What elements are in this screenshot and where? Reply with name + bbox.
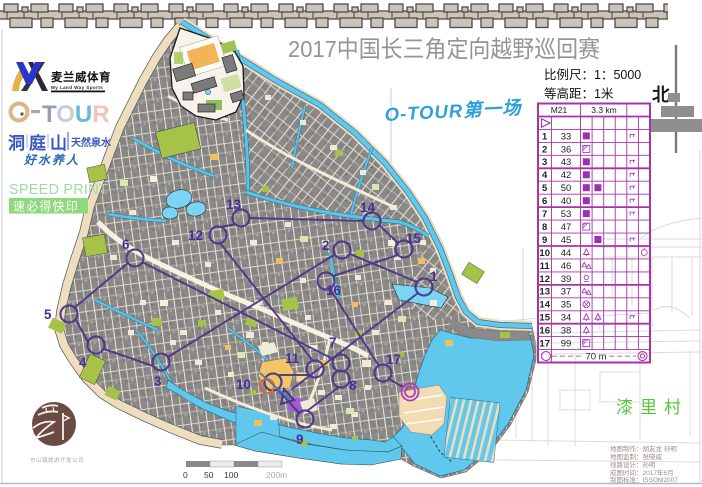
svg-text:制图标准：ISSOM2007: 制图标准：ISSOM2007 xyxy=(610,475,678,484)
svg-text:17: 17 xyxy=(539,339,550,350)
svg-text:好水养人: 好水养人 xyxy=(23,153,80,167)
svg-text:2017中国长三角定向越野巡回赛: 2017中国长三角定向越野巡回赛 xyxy=(288,36,600,62)
svg-text:12: 12 xyxy=(188,228,203,243)
svg-text:9: 9 xyxy=(296,432,304,447)
svg-text:M21: M21 xyxy=(551,105,568,115)
svg-text:15: 15 xyxy=(539,313,550,324)
svg-text:33: 33 xyxy=(561,131,572,142)
svg-text:99: 99 xyxy=(561,339,572,350)
svg-text:43: 43 xyxy=(561,157,572,168)
svg-text:0: 0 xyxy=(183,470,188,480)
svg-text:45: 45 xyxy=(561,235,572,246)
svg-text:40: 40 xyxy=(561,196,572,207)
svg-text:TOUR: TOUR xyxy=(42,101,110,128)
svg-text:麦兰威体育: 麦兰威体育 xyxy=(51,70,111,84)
svg-text:14: 14 xyxy=(360,200,376,215)
svg-text:16: 16 xyxy=(326,283,342,298)
svg-text:SPEED PRINT: SPEED PRINT xyxy=(9,182,108,198)
svg-text:6: 6 xyxy=(122,237,130,252)
svg-text:10: 10 xyxy=(539,248,550,259)
svg-text:14: 14 xyxy=(539,300,550,311)
svg-text:13: 13 xyxy=(226,197,242,212)
svg-text:地图制作：胡友龙 孙明: 地图制作：胡友龙 孙明 xyxy=(610,444,677,453)
svg-text:北: 北 xyxy=(652,85,670,105)
svg-text:4: 4 xyxy=(79,355,87,370)
svg-text:5: 5 xyxy=(44,307,52,322)
svg-text:10: 10 xyxy=(236,377,251,392)
svg-text:3: 3 xyxy=(154,374,162,389)
svg-text:速必得快印: 速必得快印 xyxy=(13,199,79,214)
svg-text:3.3 km: 3.3 km xyxy=(591,105,617,115)
svg-text:1: 1 xyxy=(542,131,548,142)
svg-text:35: 35 xyxy=(561,300,572,311)
svg-text:53: 53 xyxy=(561,209,572,220)
svg-text:7: 7 xyxy=(329,335,337,350)
svg-text:漆里村: 漆里村 xyxy=(616,398,688,417)
svg-text:15: 15 xyxy=(406,231,422,246)
svg-text:9: 9 xyxy=(542,235,547,246)
svg-text:34: 34 xyxy=(561,313,572,324)
svg-text:50: 50 xyxy=(561,183,572,194)
svg-text:东山镇旅游开发公司: 东山镇旅游开发公司 xyxy=(30,456,84,464)
svg-text:比例尺：1：5000: 比例尺：1：5000 xyxy=(544,68,641,82)
svg-text:地图监制：张晓威: 地图监制：张晓威 xyxy=(610,452,663,461)
svg-text:47: 47 xyxy=(561,222,572,233)
svg-text:8: 8 xyxy=(542,222,547,233)
svg-text:37: 37 xyxy=(561,287,572,298)
svg-text:1: 1 xyxy=(430,269,438,284)
svg-text:成图时间：2017年6月: 成图时间：2017年6月 xyxy=(610,468,674,477)
svg-text:11: 11 xyxy=(285,351,300,366)
svg-text:天然泉水: 天然泉水 xyxy=(71,136,112,149)
svg-text:17: 17 xyxy=(386,352,401,367)
svg-text:等高距：1米: 等高距：1米 xyxy=(544,86,614,101)
svg-text:200m: 200m xyxy=(266,470,287,480)
svg-text:39: 39 xyxy=(561,274,572,285)
svg-text:6: 6 xyxy=(542,196,547,207)
svg-text:5: 5 xyxy=(542,183,548,194)
svg-text:42: 42 xyxy=(561,170,572,181)
svg-text:13: 13 xyxy=(539,287,550,298)
svg-text:线路设计：孙明: 线路设计：孙明 xyxy=(610,460,656,469)
svg-text:36: 36 xyxy=(561,144,572,155)
svg-text:70 m: 70 m xyxy=(585,352,606,363)
svg-text:4: 4 xyxy=(542,170,548,181)
svg-text:100: 100 xyxy=(224,470,238,480)
svg-text:3: 3 xyxy=(542,157,547,168)
svg-text:11: 11 xyxy=(540,261,551,272)
svg-text:8: 8 xyxy=(349,378,357,393)
svg-text:7: 7 xyxy=(542,209,547,220)
svg-text:2: 2 xyxy=(542,144,547,155)
svg-text:洞庭山: 洞庭山 xyxy=(8,133,71,153)
svg-text:50: 50 xyxy=(204,470,214,480)
svg-text:2: 2 xyxy=(322,238,330,253)
svg-text:16: 16 xyxy=(539,326,550,337)
svg-text:46: 46 xyxy=(561,261,572,272)
svg-text:38: 38 xyxy=(561,326,572,337)
svg-text:44: 44 xyxy=(561,248,572,259)
svg-text:My Land Way Sports: My Land Way Sports xyxy=(51,85,103,90)
svg-text:12: 12 xyxy=(539,274,550,285)
